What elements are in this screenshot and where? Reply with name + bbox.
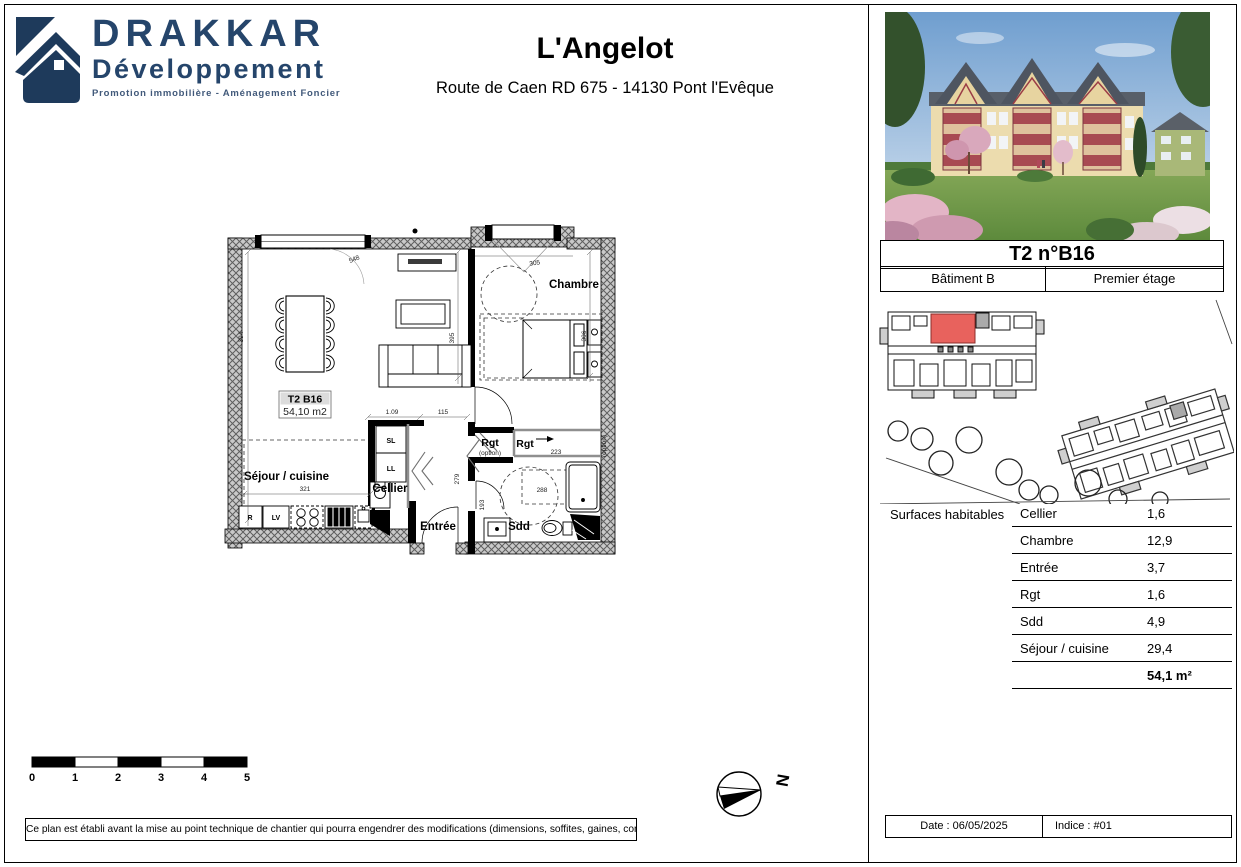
surface-name: Sdd	[1020, 614, 1043, 629]
option-side-note: (option)	[601, 435, 608, 457]
dishwasher-label: LV	[272, 515, 281, 522]
sofa	[379, 345, 471, 387]
dryer-label: SL	[387, 438, 397, 445]
scale-4: 4	[201, 772, 208, 784]
disclaimer-note: Ce plan est établi avant la mise au poin…	[25, 818, 637, 841]
unit-label-box: T2 B16 54,10 m2	[279, 391, 331, 418]
dim-306: 306	[581, 330, 588, 341]
surfaces-label: Surfaces habitables	[890, 507, 1004, 522]
north-letter: N	[772, 773, 793, 788]
date-value: Date : 06/05/2025	[886, 816, 1043, 837]
dim-305: 305	[529, 259, 541, 267]
unit-title: T2 n°B16	[880, 240, 1224, 269]
washer-label: LL	[387, 466, 396, 473]
dining-table	[286, 296, 324, 372]
dimension-lines	[241, 249, 593, 526]
site-building-a	[1052, 379, 1234, 504]
building-name: Bâtiment B	[881, 267, 1046, 291]
scale-bar: 0 1 2 3 4 5	[28, 750, 254, 784]
floor-name: Premier étage	[1046, 267, 1223, 291]
surface-value: 12,9	[1147, 533, 1172, 548]
surface-row: Rgt 1,6	[1012, 581, 1232, 608]
logo-subtitle: Développement	[92, 54, 340, 85]
surface-row: Entrée 3,7	[1012, 554, 1232, 581]
building-rendering-image	[885, 12, 1210, 240]
dim-223: 223	[551, 449, 562, 456]
dim-395: 395	[449, 332, 456, 343]
dim-115: 115	[438, 409, 449, 416]
surface-value: 1,6	[1147, 587, 1165, 602]
room-label-sejour: Séjour / cuisine	[244, 471, 329, 483]
kitchen-units	[239, 506, 372, 528]
tv-sideboard	[398, 254, 456, 271]
surface-name: Entrée	[1020, 560, 1058, 575]
scale-3: 3	[158, 772, 164, 784]
unit-area: 54,10 m2	[283, 406, 327, 418]
room-label-rgt1: Rgt	[481, 437, 499, 449]
page-address: Route de Caen RD 675 - 14130 Pont l'Evêq…	[350, 79, 860, 98]
dim-193: 193	[479, 499, 486, 510]
surface-name: Chambre	[1020, 533, 1073, 548]
north-compass: N	[708, 762, 803, 824]
room-label-chambre: Chambre	[549, 279, 599, 291]
coffee-table	[396, 300, 450, 328]
surface-name: Rgt	[1020, 587, 1040, 602]
logo-tagline: Promotion immobilière - Aménagement Fonc…	[92, 88, 340, 99]
indice-value: Indice : #01	[1043, 816, 1231, 837]
dim-279: 279	[454, 473, 461, 484]
room-label-rgt2: Rgt	[516, 438, 534, 450]
surface-row: Séjour / cuisine 29,4	[1012, 635, 1232, 662]
logo-name: DRAKKAR	[92, 14, 340, 54]
dim-321: 321	[300, 486, 311, 493]
surface-total: 54,1 m²	[1147, 668, 1192, 683]
site-building-b	[880, 312, 1044, 398]
surface-row: Cellier 1,6	[1012, 500, 1232, 527]
surface-value: 29,4	[1147, 641, 1172, 656]
surface-value: 4,9	[1147, 614, 1165, 629]
drakkar-logo-house-icon	[15, 16, 81, 104]
scale-0: 0	[29, 772, 35, 784]
highlighted-unit	[931, 314, 975, 343]
room-label-entree: Entrée	[420, 521, 456, 533]
rgt-arrow-icon	[536, 436, 554, 442]
surface-row: Sdd 4,9	[1012, 608, 1232, 635]
drakkar-logo-text: DRAKKAR Développement Promotion immobili…	[92, 14, 340, 99]
dim-288: 288	[537, 487, 548, 494]
floorplan: R LV SL LL T2 B16 54,10 m2 Séjour / cuis…	[222, 224, 624, 572]
scale-1: 1	[72, 772, 78, 784]
unit-label: T2 B16	[288, 394, 323, 406]
dim-109: 1.09	[386, 409, 399, 416]
room-label-sdd: Sdd	[508, 521, 530, 533]
surface-value: 3,7	[1147, 560, 1165, 575]
rgt-option-note: (option)	[479, 450, 501, 457]
site-plan	[878, 298, 1234, 504]
surface-row: Chambre 12,9	[1012, 527, 1232, 554]
surface-total-row: 54,1 m²	[1012, 662, 1232, 689]
page-title: L'Angelot	[350, 32, 860, 66]
panel-divider	[868, 4, 869, 863]
scale-5: 5	[244, 772, 250, 784]
surface-name: Cellier	[1020, 506, 1057, 521]
room-label-cellier: Cellier	[372, 483, 408, 495]
surfaces-table: Cellier 1,6 Chambre 12,9 Entrée 3,7 Rgt …	[1012, 500, 1232, 689]
scale-2: 2	[115, 772, 121, 784]
dim-394: 394	[238, 331, 245, 342]
vent-dot	[413, 229, 418, 234]
footer-bar: Date : 06/05/2025 Indice : #01	[885, 815, 1232, 838]
unit-subtitle-row: Bâtiment B Premier étage	[880, 266, 1224, 292]
dim-548: 548	[348, 254, 361, 265]
surface-value: 1,6	[1147, 506, 1165, 521]
bed	[523, 320, 587, 378]
surface-name: Séjour / cuisine	[1020, 641, 1109, 656]
